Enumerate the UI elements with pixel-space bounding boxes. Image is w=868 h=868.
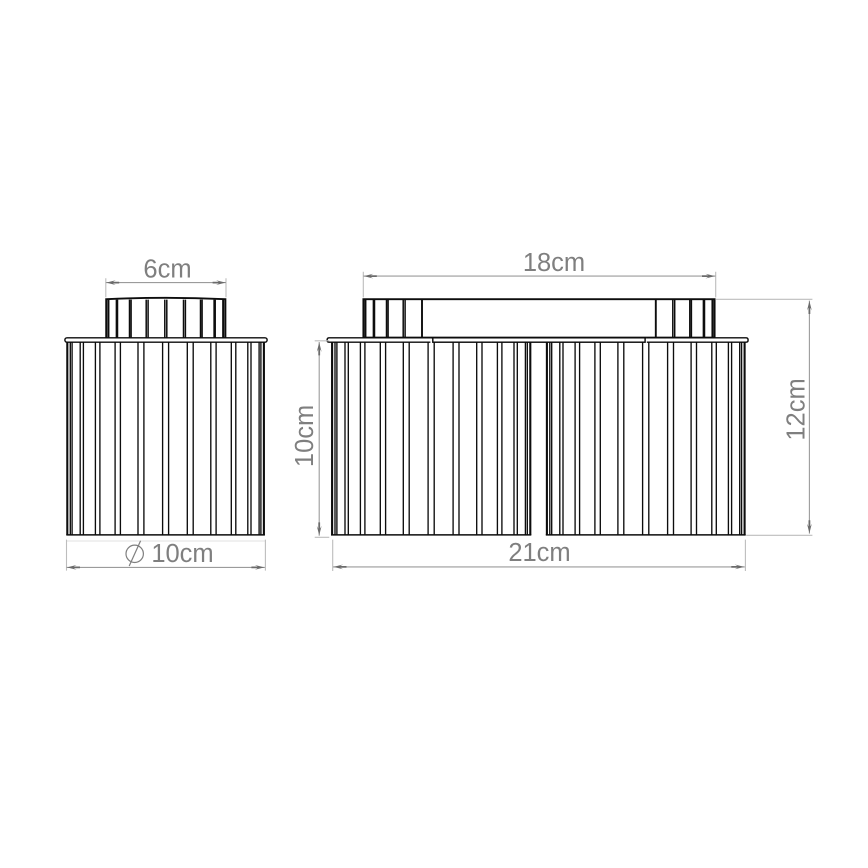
svg-text:21cm: 21cm: [508, 539, 570, 567]
svg-text:18cm: 18cm: [523, 249, 585, 277]
svg-text:10cm: 10cm: [151, 540, 213, 568]
svg-text:6cm: 6cm: [143, 255, 191, 283]
svg-text:12cm: 12cm: [783, 378, 811, 440]
svg-text:10cm: 10cm: [291, 405, 319, 467]
